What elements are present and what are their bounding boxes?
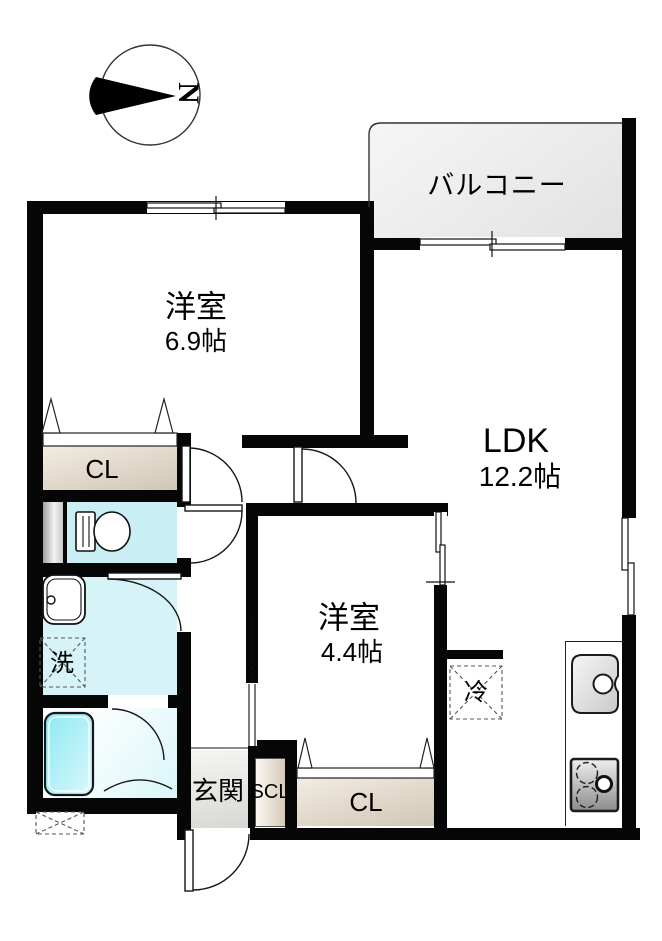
door-bathroom <box>104 709 172 791</box>
toilet-icon <box>76 512 130 551</box>
stove-icon <box>571 759 618 811</box>
closet1-label: CL <box>85 456 118 482</box>
ldk-area: 12.2帖 <box>479 463 562 491</box>
refrigerator-label: 冷 <box>464 681 488 705</box>
sliding-door-west2-west <box>247 617 257 746</box>
entrance-label: 玄関 <box>192 778 244 804</box>
closet2-label: CL <box>349 789 382 815</box>
door-entrance <box>185 830 249 891</box>
western2-area: 4.4帖 <box>321 639 383 665</box>
shoe-closet-label: SCL <box>251 782 290 802</box>
closet1-folding-door <box>42 399 177 446</box>
wash-basin-icon <box>43 575 85 624</box>
door-washroom <box>108 573 181 631</box>
window-right <box>621 518 636 615</box>
western1-name: 洋室 <box>165 292 227 323</box>
door-west1 <box>182 446 242 502</box>
window-balcony <box>420 231 565 257</box>
floor-plan: N バルコニー 洋室 6.9帖 LDK 12.2帖 洋室 4.4帖 CL CL … <box>0 0 662 941</box>
balcony-label: バルコニー <box>427 173 566 200</box>
ldk-name: LDK <box>483 424 549 458</box>
western1-area: 6.9帖 <box>165 328 227 354</box>
laundry-label: 洗 <box>50 652 74 676</box>
bathtub-icon <box>45 713 93 795</box>
meter-box <box>36 812 84 834</box>
sliding-door-west2-east <box>426 512 455 585</box>
door-toilet <box>185 505 242 563</box>
door-ldk <box>294 447 356 503</box>
kitchen-sink-icon <box>572 655 618 713</box>
closet2-folding-door <box>297 738 434 778</box>
compass-north-label: N <box>173 82 203 104</box>
window-top <box>147 196 285 220</box>
western2-name: 洋室 <box>318 603 380 634</box>
